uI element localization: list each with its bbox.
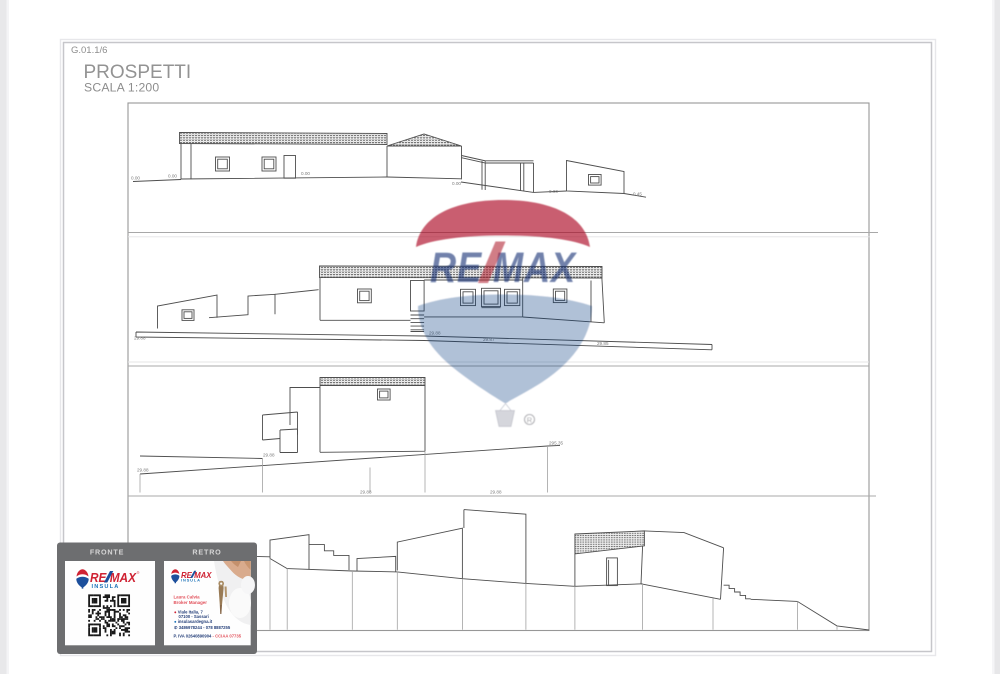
svg-text:0.00: 0.00: [549, 189, 558, 194]
svg-text:295.35: 295.35: [549, 441, 563, 446]
svg-text:0.00: 0.00: [301, 171, 310, 176]
svg-text:29.88: 29.88: [134, 336, 146, 341]
svg-text:29.85: 29.85: [597, 341, 609, 346]
svg-text:29.88: 29.88: [137, 468, 149, 473]
svg-text:✆ 3486978244 - 078 8887255: ✆ 3486978244 - 078 8887255: [174, 625, 231, 630]
svg-text:FRONTE: FRONTE: [90, 548, 124, 557]
svg-text:INSULA: INSULA: [181, 578, 201, 583]
svg-text:RE MAX: RE MAX: [430, 245, 577, 292]
svg-text:Laura Calvia: Laura Calvia: [174, 594, 201, 599]
svg-text:SCALA 1:200: SCALA 1:200: [84, 81, 159, 95]
svg-text:29.88: 29.88: [490, 490, 502, 495]
svg-text:®: ®: [137, 571, 140, 575]
svg-text:0.00: 0.00: [131, 176, 140, 181]
svg-text:Broker Manager: Broker Manager: [174, 600, 208, 605]
svg-text:29.88: 29.88: [360, 490, 372, 495]
svg-text:RE MAX: RE MAX: [90, 570, 137, 585]
svg-text:0.45: 0.45: [633, 192, 642, 197]
svg-text:INSULA: INSULA: [92, 584, 120, 590]
svg-text:0.00: 0.00: [168, 174, 177, 179]
svg-text:0.00: 0.00: [452, 181, 461, 186]
svg-text:R: R: [527, 415, 533, 424]
svg-text:● insulasardegna.it: ● insulasardegna.it: [174, 619, 213, 624]
svg-text:P. IVA 02640890904 - CCIAA 077: P. IVA 02640890904 - CCIAA 07735: [174, 634, 242, 639]
svg-text:29.88: 29.88: [263, 453, 275, 458]
svg-text:RETRO: RETRO: [192, 548, 221, 557]
svg-text:G.01.1/6: G.01.1/6: [71, 45, 107, 56]
